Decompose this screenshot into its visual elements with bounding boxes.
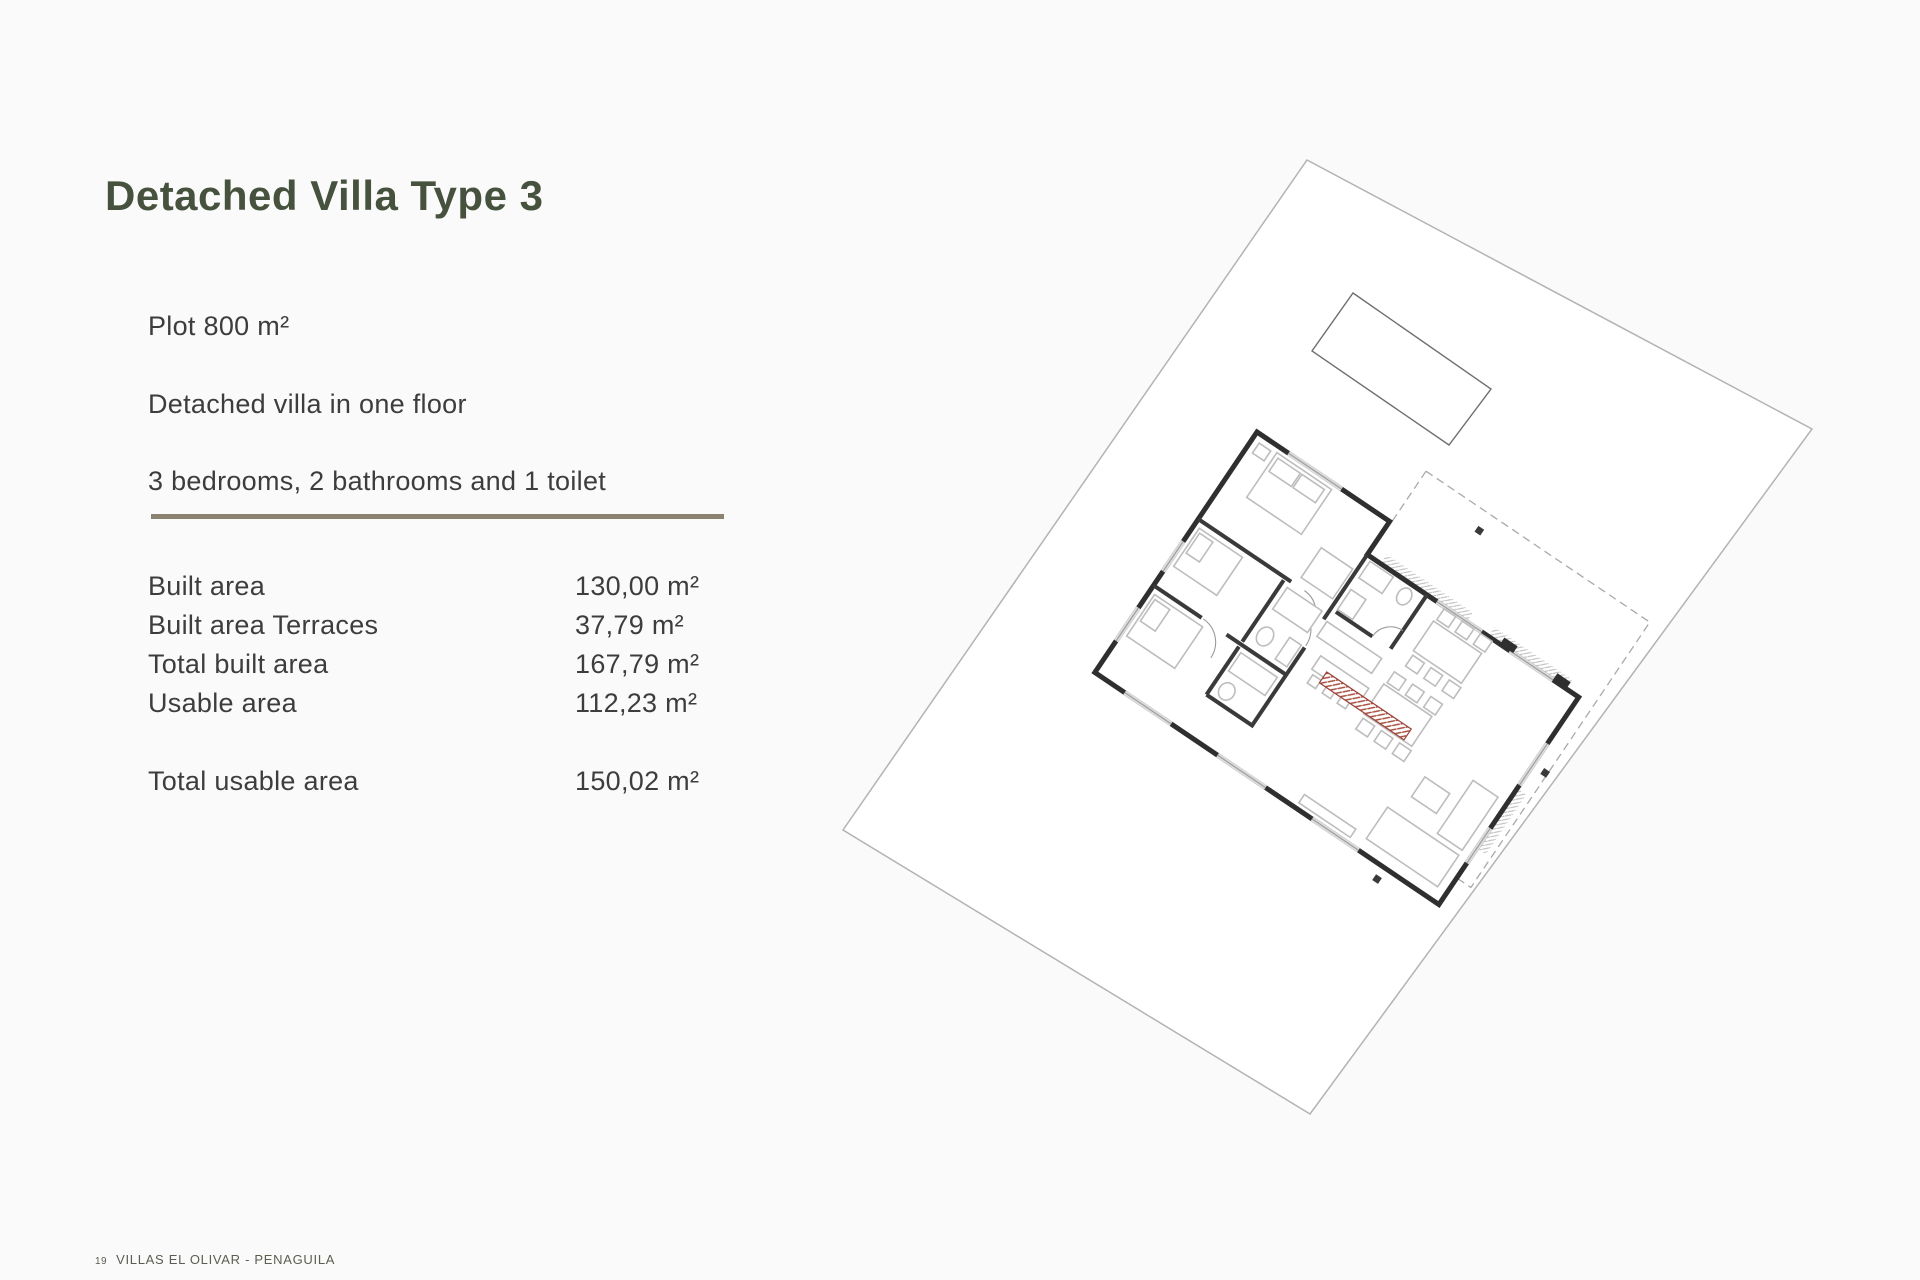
brochure-page: Detached Villa Type 3 Plot 800 m² Detach… xyxy=(0,0,1920,1280)
site-plan-figure xyxy=(0,0,1920,1280)
